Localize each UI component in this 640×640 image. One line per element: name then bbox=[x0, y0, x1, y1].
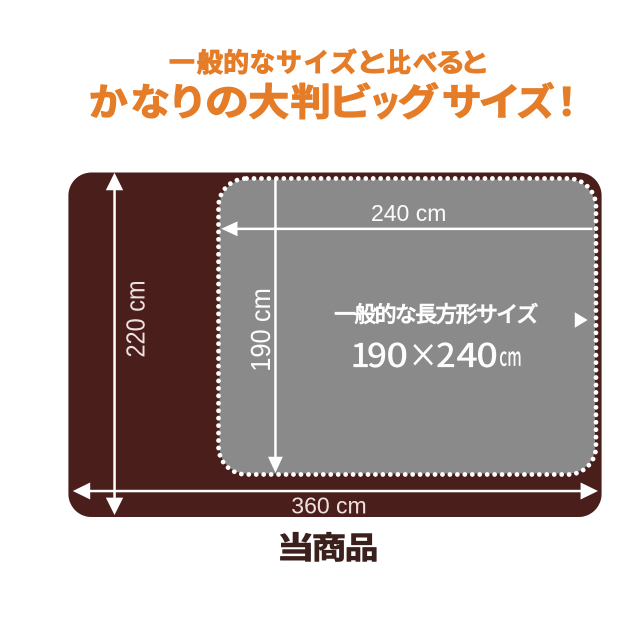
svg-text:190 cm: 190 cm bbox=[245, 288, 276, 372]
svg-text:220 cm: 220 cm bbox=[121, 280, 151, 357]
svg-text:360 cm: 360 cm bbox=[291, 493, 366, 519]
svg-text:240 cm: 240 cm bbox=[371, 200, 446, 226]
